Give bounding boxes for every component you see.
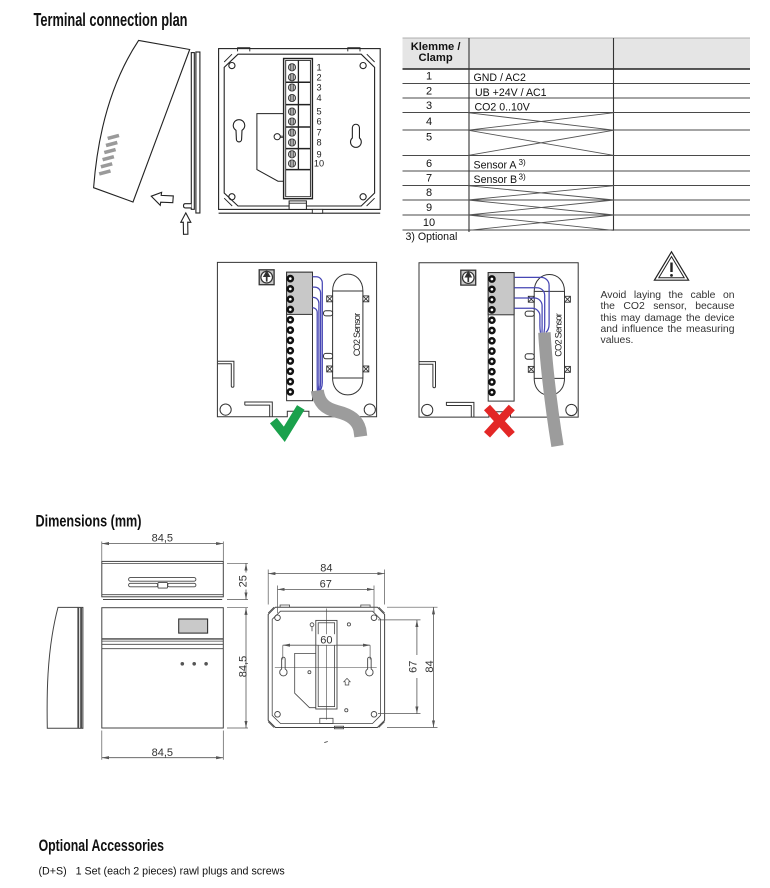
svg-text:4: 4 xyxy=(317,93,322,103)
svg-text:67: 67 xyxy=(320,578,332,590)
svg-text:Optional Accessories: Optional Accessories xyxy=(39,836,164,855)
svg-text:84,5: 84,5 xyxy=(237,656,249,677)
svg-text:67: 67 xyxy=(407,661,419,673)
svg-text:1: 1 xyxy=(426,70,432,82)
svg-text:GND / AC2: GND / AC2 xyxy=(474,72,527,84)
svg-text:8: 8 xyxy=(317,138,322,148)
svg-text:6: 6 xyxy=(317,117,322,127)
svg-text:9: 9 xyxy=(426,202,432,214)
svg-text:3: 3 xyxy=(426,100,432,112)
svg-text:3): 3) xyxy=(519,158,527,167)
svg-text:CO2 0..10V: CO2 0..10V xyxy=(475,102,531,114)
svg-text:2: 2 xyxy=(317,72,322,82)
svg-text:6: 6 xyxy=(426,158,432,170)
svg-text:5: 5 xyxy=(426,131,432,143)
svg-text:1: 1 xyxy=(317,62,322,72)
svg-text:Sensor B: Sensor B xyxy=(474,174,518,186)
svg-text:84,5: 84,5 xyxy=(152,747,173,759)
svg-text:7: 7 xyxy=(317,128,322,138)
svg-text:8: 8 xyxy=(426,187,432,199)
svg-text:Dimensions (mm): Dimensions (mm) xyxy=(36,512,142,531)
svg-text:Terminal connection plan: Terminal connection plan xyxy=(34,9,188,30)
svg-text:2: 2 xyxy=(426,85,432,97)
svg-text:84: 84 xyxy=(424,660,436,672)
svg-text:25: 25 xyxy=(237,575,249,587)
svg-text:7: 7 xyxy=(426,173,432,185)
svg-text:4: 4 xyxy=(426,116,432,128)
svg-text:3) Optional: 3) Optional xyxy=(406,231,458,243)
svg-text:10: 10 xyxy=(314,159,324,169)
svg-text:(D+S) 1 Set (each 2 pieces): (D+S) 1 Set (each 2 pieces) rawl plugs a… xyxy=(39,865,285,877)
svg-text:Clamp: Clamp xyxy=(418,52,452,64)
svg-text:84: 84 xyxy=(320,563,332,575)
svg-text:3): 3) xyxy=(519,172,527,181)
svg-text:84,5: 84,5 xyxy=(152,532,173,544)
svg-text:3: 3 xyxy=(317,83,322,93)
svg-text:10: 10 xyxy=(423,217,435,229)
svg-text:Sensor A: Sensor A xyxy=(474,160,518,172)
svg-text:60: 60 xyxy=(320,634,332,646)
svg-text:5: 5 xyxy=(317,107,322,117)
svg-text:UB +24V / AC1: UB +24V / AC1 xyxy=(475,87,547,99)
